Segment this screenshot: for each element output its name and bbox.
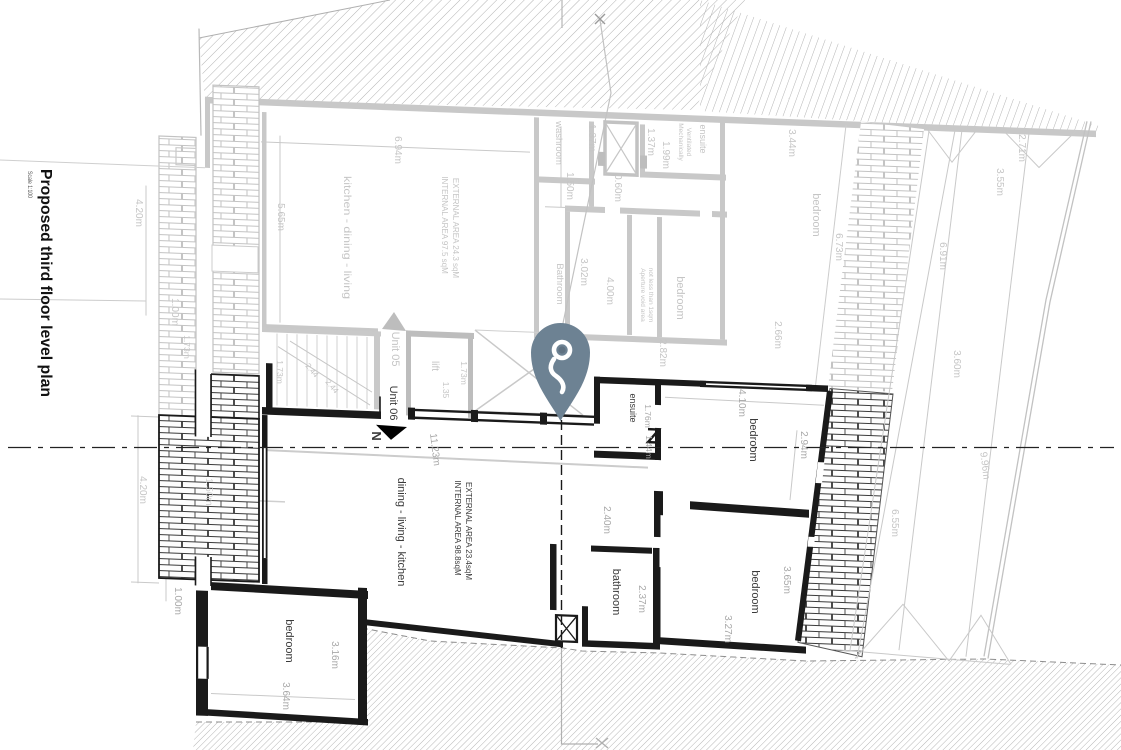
svg-text:1.00m: 1.00m [169, 298, 180, 326]
svg-text:1.76m: 1.76m [643, 404, 653, 428]
svg-text:1.35: 1.35 [441, 382, 451, 399]
svg-text:3.64m: 3.64m [280, 682, 291, 710]
svg-text:ensuite: ensuite [698, 124, 708, 153]
svg-text:ensuite: ensuite [628, 393, 638, 422]
svg-text:bedroom: bedroom [749, 570, 761, 613]
svg-text:3.60m: 3.60m [951, 350, 962, 378]
svg-text:2.82m: 2.82m [657, 339, 668, 367]
svg-text:1.73m: 1.73m [275, 360, 285, 384]
svg-text:6.55m: 6.55m [889, 509, 900, 537]
svg-text:2.37m: 2.37m [636, 585, 647, 613]
svg-text:1.37m: 1.37m [586, 124, 597, 152]
svg-text:N: N [369, 431, 384, 440]
svg-text:6.94m: 6.94m [392, 136, 403, 164]
svg-text:Proposed third floor level pla: Proposed third floor level plan [37, 169, 54, 397]
svg-text:not less than 1sqm: not less than 1sqm [647, 268, 654, 323]
svg-text:4.20m: 4.20m [133, 199, 144, 227]
svg-text:Unit 06: Unit 06 [387, 386, 399, 421]
svg-text:INTERNAL AREA 97.5 sqM: INTERNAL AREA 97.5 sqM [440, 176, 449, 274]
svg-text:1.73m: 1.73m [459, 361, 469, 385]
svg-text:Ventilated: Ventilated [685, 128, 692, 157]
svg-text:1.37m: 1.37m [645, 128, 656, 156]
svg-text:1.44m: 1.44m [644, 435, 654, 459]
svg-text:2.66m: 2.66m [772, 321, 783, 349]
svg-text:3.02m: 3.02m [578, 258, 589, 286]
svg-text:5.65m: 5.65m [275, 203, 286, 231]
svg-text:4.20m: 4.20m [137, 476, 148, 504]
svg-text:1.50m: 1.50m [564, 172, 575, 200]
svg-text:Scale 1:100: Scale 1:100 [26, 171, 33, 198]
svg-text:Bathroom: Bathroom [554, 263, 565, 304]
svg-text:0.60m: 0.60m [612, 174, 623, 202]
svg-text:EXTERNAL AREA 23.4sqM: EXTERNAL AREA 23.4sqM [464, 482, 473, 580]
svg-text:dining - living - kitchen: dining - living - kitchen [395, 478, 407, 587]
svg-text:3.16m: 3.16m [329, 641, 340, 669]
svg-text:1.73m: 1.73m [182, 335, 192, 359]
svg-text:washroom: washroom [553, 120, 564, 165]
svg-text:2.71m: 2.71m [1016, 134, 1027, 162]
svg-text:4.10m: 4.10m [736, 389, 747, 417]
svg-text:Mechanically: Mechanically [677, 123, 684, 161]
svg-text:3.27m: 3.27m [722, 615, 733, 643]
svg-text:1.99m: 1.99m [660, 141, 671, 169]
svg-text:3.65m: 3.65m [781, 566, 792, 594]
svg-text:Aperture void area: Aperture void area [639, 268, 646, 322]
svg-text:bathroom: bathroom [610, 569, 622, 615]
svg-text:4.00m: 4.00m [604, 277, 615, 305]
svg-text:3.55m: 3.55m [994, 168, 1005, 196]
svg-text:1.00m: 1.00m [172, 587, 183, 615]
svg-text:bedroom: bedroom [674, 276, 686, 319]
svg-text:EXTERNAL AREA 24.3 sqM: EXTERNAL AREA 24.3 sqM [451, 178, 460, 279]
svg-text:bedroom: bedroom [283, 619, 295, 662]
svg-text:lift: lift [429, 361, 440, 371]
svg-text:bedroom: bedroom [810, 193, 822, 236]
svg-text:3.44m: 3.44m [786, 129, 797, 157]
svg-text:1.50m: 1.50m [203, 478, 214, 506]
svg-text:bedroom: bedroom [747, 418, 759, 461]
svg-text:2.40m: 2.40m [601, 506, 612, 534]
svg-text:Unit 05: Unit 05 [389, 332, 401, 367]
svg-text:6.73m: 6.73m [833, 233, 844, 261]
svg-text:kitchen - dining - living: kitchen - dining - living [341, 176, 353, 299]
svg-text:INTERNAL AREA 98.8sqM: INTERNAL AREA 98.8sqM [453, 480, 462, 576]
svg-text:2.94m: 2.94m [798, 431, 809, 459]
svg-text:6.91m: 6.91m [937, 242, 948, 270]
